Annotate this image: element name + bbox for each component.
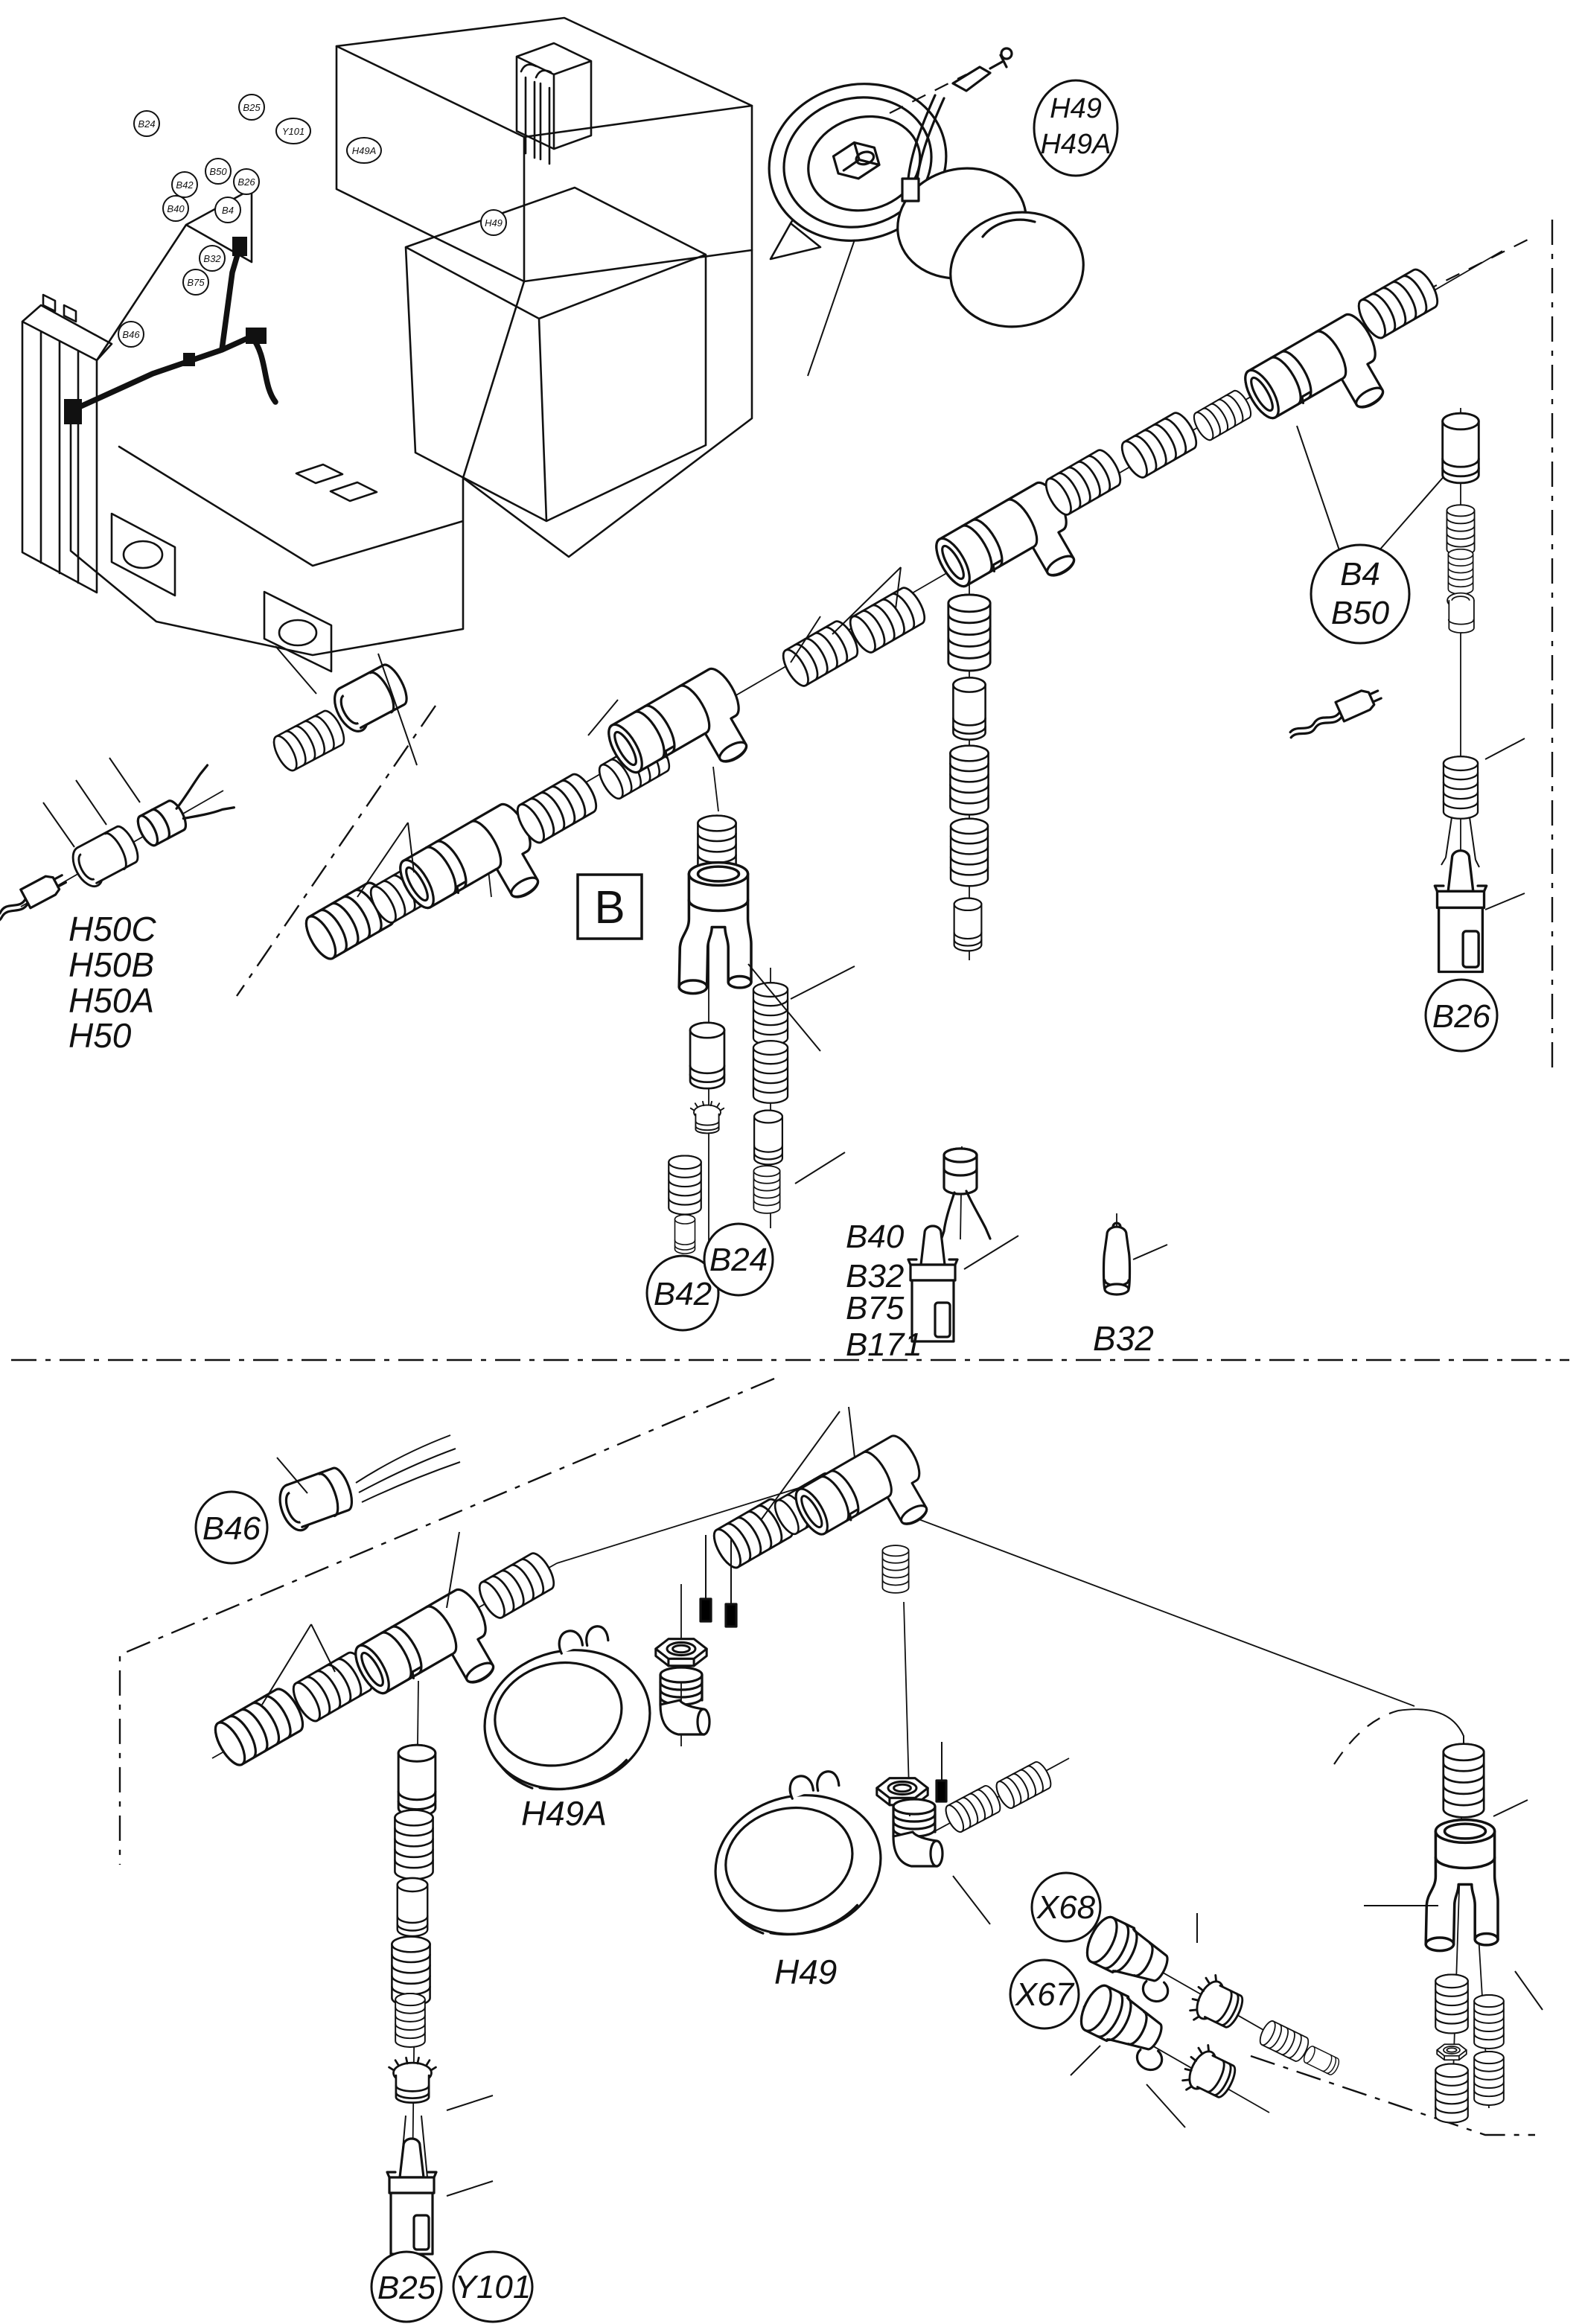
lower-harness-diagram: B46 H49A: [120, 1379, 1543, 2322]
right-lower-chain: [1334, 1709, 1543, 2122]
machine-callout-b40: B40: [163, 196, 188, 221]
svg-text:B40: B40: [167, 203, 185, 214]
machine-callout-h49a: H49A: [347, 138, 381, 163]
machine-overview: B24B25Y101B42B50B26B4B40B32B75B46H49AH49: [22, 18, 752, 671]
section-b-letter: B: [594, 882, 625, 933]
label-h50a: H50A: [68, 981, 154, 1020]
svg-text:B50: B50: [209, 166, 227, 177]
chain-b26: [1435, 413, 1525, 971]
machine-callout-b75: B75: [183, 269, 208, 295]
chain-b25-y101: [387, 1745, 493, 2254]
svg-text:B4: B4: [222, 205, 234, 216]
svg-text:B42: B42: [654, 1276, 712, 1312]
callout-h49-h49a: H49 H49A: [1034, 80, 1117, 176]
machine-callouts: B24B25Y101B42B50B26B4B40B32B75B46H49AH49: [118, 95, 506, 347]
svg-text:Y101: Y101: [282, 126, 304, 137]
callout-x68: X68: [1032, 1873, 1100, 1941]
callout-h49-line2: H49A: [1040, 129, 1111, 160]
svg-text:B32: B32: [203, 253, 221, 264]
svg-text:B24: B24: [709, 1242, 768, 1278]
svg-text:X68: X68: [1036, 1889, 1096, 1926]
h50-bulb-holder: [0, 758, 234, 933]
sensor-b32: [1104, 1213, 1168, 1295]
machine-callout-b24: B24: [134, 111, 159, 136]
chain-b42-b24: [669, 816, 855, 1254]
svg-text:H49A: H49A: [352, 145, 377, 156]
label-b32a: B32: [846, 1258, 904, 1295]
callout-h49-line1: H49: [1050, 93, 1102, 124]
upper-harness-diagram: H50C H50B H50A H50 B: [0, 220, 1569, 1363]
callout-b4-b50: B4 B50: [1311, 545, 1409, 643]
machine-callout-b42: B42: [172, 172, 197, 197]
label-h49a-lower: H49A: [521, 1794, 607, 1833]
svg-text:X67: X67: [1015, 1976, 1075, 2013]
wiring-harness-exploded-diagram: B24B25Y101B42B50B26B4B40B32B75B46H49AH49: [0, 0, 1582, 2324]
machine-callout-h49: H49: [481, 210, 506, 235]
callout-b25: B25: [371, 2252, 441, 2322]
machine-callout-b26: B26: [234, 169, 259, 194]
svg-text:B26: B26: [237, 176, 255, 188]
label-b32: B32: [1093, 1319, 1154, 1358]
callout-b24: B24: [704, 1224, 773, 1295]
machine-callout-b25: B25: [239, 95, 264, 120]
callout-b26: B26: [1426, 980, 1497, 1051]
horn-assembly-detail: H49 H49A: [750, 48, 1117, 376]
svg-text:H49: H49: [485, 217, 503, 229]
b46-connector: [274, 1435, 460, 1534]
label-b40: B40: [846, 1219, 905, 1255]
machine-callout-b32: B32: [200, 246, 225, 271]
svg-text:B50: B50: [1331, 595, 1390, 631]
callout-x67: X67: [1010, 1960, 1079, 2028]
label-b171: B171: [846, 1327, 922, 1363]
section-b-marker: B: [578, 875, 642, 939]
svg-text:B25: B25: [377, 2270, 436, 2306]
svg-text:B46: B46: [202, 1510, 261, 1547]
label-h49-lower: H49: [774, 1953, 837, 1991]
callout-y101: Y101: [453, 2252, 532, 2322]
label-h50b: H50B: [68, 945, 154, 984]
label-b75: B75: [846, 1290, 905, 1327]
callout-b46: B46: [196, 1492, 267, 1563]
machine-callout-b46: B46: [118, 322, 144, 347]
svg-text:B26: B26: [1432, 998, 1491, 1035]
svg-text:B4: B4: [1340, 556, 1380, 593]
label-h50c: H50C: [68, 910, 156, 948]
chain-b40: [908, 595, 1018, 1341]
svg-text:B42: B42: [176, 179, 194, 191]
svg-text:B24: B24: [138, 118, 155, 130]
svg-text:B75: B75: [187, 277, 205, 288]
machine-callout-y101: Y101: [276, 118, 310, 144]
h49-horn-branch: [697, 1545, 1055, 1951]
machine-callout-b50: B50: [205, 159, 231, 184]
label-h50: H50: [68, 1016, 132, 1055]
parts-diagram-page: B24B25Y101B42B50B26B4B40B32B75B46H49AH49: [0, 0, 1582, 2324]
svg-text:B46: B46: [122, 329, 140, 340]
machine-callout-b4: B4: [215, 197, 240, 223]
svg-text:Y101: Y101: [455, 2269, 532, 2305]
svg-text:B25: B25: [243, 102, 261, 113]
